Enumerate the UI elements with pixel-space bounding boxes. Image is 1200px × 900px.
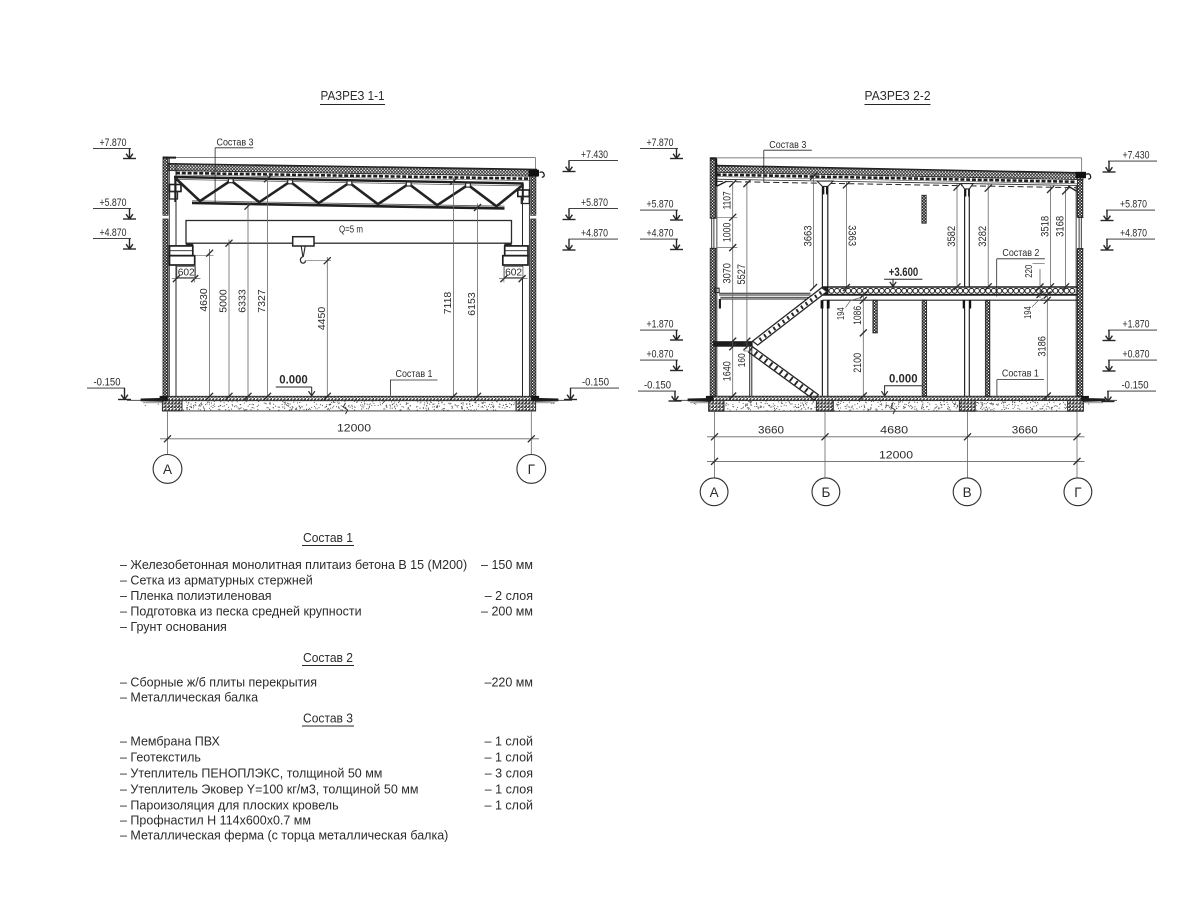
- svg-text:602: 602: [178, 267, 195, 278]
- svg-text:+3.600: +3.600: [889, 265, 919, 279]
- svg-text:РАЗРЕЗ 2-2: РАЗРЕЗ 2-2: [865, 88, 931, 103]
- svg-text:–220 мм: –220 мм: [485, 676, 533, 690]
- svg-text:– 3 слоя: – 3 слоя: [485, 767, 533, 781]
- svg-text:– Пароизоляция для плоских кро: – Пароизоляция для плоских кровель: [120, 799, 339, 813]
- svg-text:4630: 4630: [198, 288, 210, 312]
- svg-text:Состав 1: Состав 1: [1002, 368, 1039, 380]
- svg-text:– Металлическая ферма (с торца: – Металлическая ферма (с торца металличе…: [120, 829, 448, 843]
- svg-text:– Грунт основания: – Грунт основания: [120, 620, 227, 634]
- svg-text:+7.870: +7.870: [100, 137, 127, 149]
- svg-text:+5.870: +5.870: [581, 197, 608, 209]
- svg-text:– Пленка полиэтиленовая: – Пленка полиэтиленовая: [120, 589, 272, 603]
- svg-text:1000: 1000: [722, 223, 734, 243]
- svg-text:– 1 слой: – 1 слой: [485, 799, 533, 813]
- svg-text:– Утеплитель ПЕНОПЛЭКС, толщин: – Утеплитель ПЕНОПЛЭКС, толщиной 50 мм: [120, 767, 382, 781]
- svg-text:-0.150: -0.150: [1122, 380, 1149, 392]
- svg-text:-0.150: -0.150: [644, 380, 671, 392]
- svg-text:Состав 2: Состав 2: [1002, 247, 1039, 259]
- svg-text:-0.150: -0.150: [94, 377, 121, 389]
- svg-text:Г: Г: [528, 462, 536, 477]
- svg-text:+4.870: +4.870: [647, 228, 674, 240]
- svg-text:+1.870: +1.870: [1123, 319, 1150, 331]
- svg-text:+5.870: +5.870: [1120, 199, 1147, 211]
- svg-text:Q=5 m: Q=5 m: [339, 225, 363, 236]
- svg-text:– Подготовка из песка средней: – Подготовка из песка средней крупности: [120, 605, 362, 619]
- svg-text:– Геотекстиль: – Геотекстиль: [120, 751, 201, 765]
- svg-text:– 1 слой: – 1 слой: [485, 751, 533, 765]
- svg-text:– 200 мм: – 200 мм: [481, 605, 533, 619]
- svg-text:602: 602: [505, 267, 522, 278]
- svg-text:-0.150: -0.150: [582, 377, 609, 389]
- svg-text:4680: 4680: [880, 425, 908, 437]
- svg-text:3660: 3660: [758, 425, 784, 437]
- svg-text:12000: 12000: [879, 449, 913, 461]
- svg-text:3186: 3186: [1036, 336, 1048, 357]
- svg-text:Г: Г: [1074, 485, 1082, 500]
- svg-text:А: А: [710, 485, 719, 500]
- svg-text:3282: 3282: [977, 226, 989, 247]
- svg-text:– Профнастил Н 114х600х0.7 мм: – Профнастил Н 114х600х0.7 мм: [120, 814, 311, 828]
- svg-text:194: 194: [835, 307, 847, 320]
- svg-text:3363: 3363: [846, 225, 858, 246]
- svg-text:– Сборные ж/б плиты перекрытия: – Сборные ж/б плиты перекрытия: [120, 676, 317, 690]
- svg-text:6153: 6153: [466, 292, 478, 316]
- svg-text:7327: 7327: [256, 289, 268, 313]
- svg-text:12000: 12000: [337, 422, 371, 434]
- svg-text:160: 160: [736, 353, 748, 367]
- svg-text:6333: 6333: [237, 289, 249, 313]
- svg-text:В: В: [963, 485, 972, 500]
- svg-text:– Мембрана ПВХ: – Мембрана ПВХ: [120, 735, 221, 749]
- svg-text:РАЗРЕЗ 1-1: РАЗРЕЗ 1-1: [321, 88, 385, 103]
- svg-text:1640: 1640: [722, 361, 734, 381]
- svg-text:3168: 3168: [1055, 216, 1067, 237]
- svg-text:+0.870: +0.870: [647, 349, 674, 361]
- svg-text:Б: Б: [821, 485, 830, 500]
- svg-text:– Железобетонная монолитная п: – Железобетонная монолитная плитаиз бето…: [120, 558, 467, 572]
- svg-text:Состав 1: Состав 1: [303, 530, 353, 545]
- svg-text:4450: 4450: [316, 307, 328, 331]
- svg-text:Состав 3: Состав 3: [217, 137, 254, 149]
- svg-text:0.000: 0.000: [279, 373, 308, 387]
- svg-text:2100: 2100: [852, 353, 864, 373]
- svg-text:7118: 7118: [442, 292, 454, 315]
- svg-text:+5.870: +5.870: [100, 197, 127, 209]
- svg-text:– 2 слоя: – 2 слоя: [485, 589, 533, 603]
- svg-text:220: 220: [1023, 265, 1035, 278]
- svg-text:3070: 3070: [722, 263, 734, 284]
- svg-text:– Сетка из арматурных стержней: – Сетка из арматурных стержней: [120, 574, 313, 588]
- svg-text:3518: 3518: [1039, 216, 1051, 237]
- svg-text:– Утеплитель Эковер Y=100 кг/м: – Утеплитель Эковер Y=100 кг/м3, толщино…: [120, 783, 418, 797]
- svg-text:5000: 5000: [218, 289, 230, 313]
- svg-text:0.000: 0.000: [889, 372, 918, 386]
- svg-text:– Металлическая балка: – Металлическая балка: [120, 691, 258, 705]
- svg-text:+7.430: +7.430: [581, 149, 608, 161]
- svg-text:А: А: [163, 462, 172, 477]
- svg-text:+4.870: +4.870: [100, 227, 127, 239]
- svg-text:3660: 3660: [1012, 425, 1038, 437]
- svg-text:+7.430: +7.430: [1123, 150, 1150, 162]
- svg-text:194: 194: [1022, 306, 1034, 319]
- svg-text:+4.870: +4.870: [581, 228, 608, 240]
- svg-text:Состав 3: Состав 3: [303, 711, 353, 726]
- svg-text:1086: 1086: [852, 306, 864, 325]
- svg-text:+4.870: +4.870: [1120, 228, 1147, 240]
- svg-text:– 150 мм: – 150 мм: [481, 558, 533, 572]
- svg-text:1107: 1107: [722, 191, 734, 209]
- svg-text:+0.870: +0.870: [1123, 349, 1150, 361]
- svg-text:3582: 3582: [946, 226, 958, 247]
- svg-text:3663: 3663: [803, 226, 815, 247]
- svg-text:– 1 слоя: – 1 слоя: [485, 783, 533, 797]
- svg-text:5527: 5527: [736, 264, 748, 285]
- svg-text:+1.870: +1.870: [647, 319, 674, 331]
- svg-text:Состав 1: Состав 1: [396, 368, 433, 380]
- svg-text:Состав 3: Состав 3: [769, 139, 806, 151]
- svg-text:Состав 2: Состав 2: [303, 650, 353, 665]
- svg-text:+5.870: +5.870: [647, 199, 674, 211]
- svg-text:+7.870: +7.870: [647, 137, 674, 149]
- svg-text:– 1 слой: – 1 слой: [485, 735, 533, 749]
